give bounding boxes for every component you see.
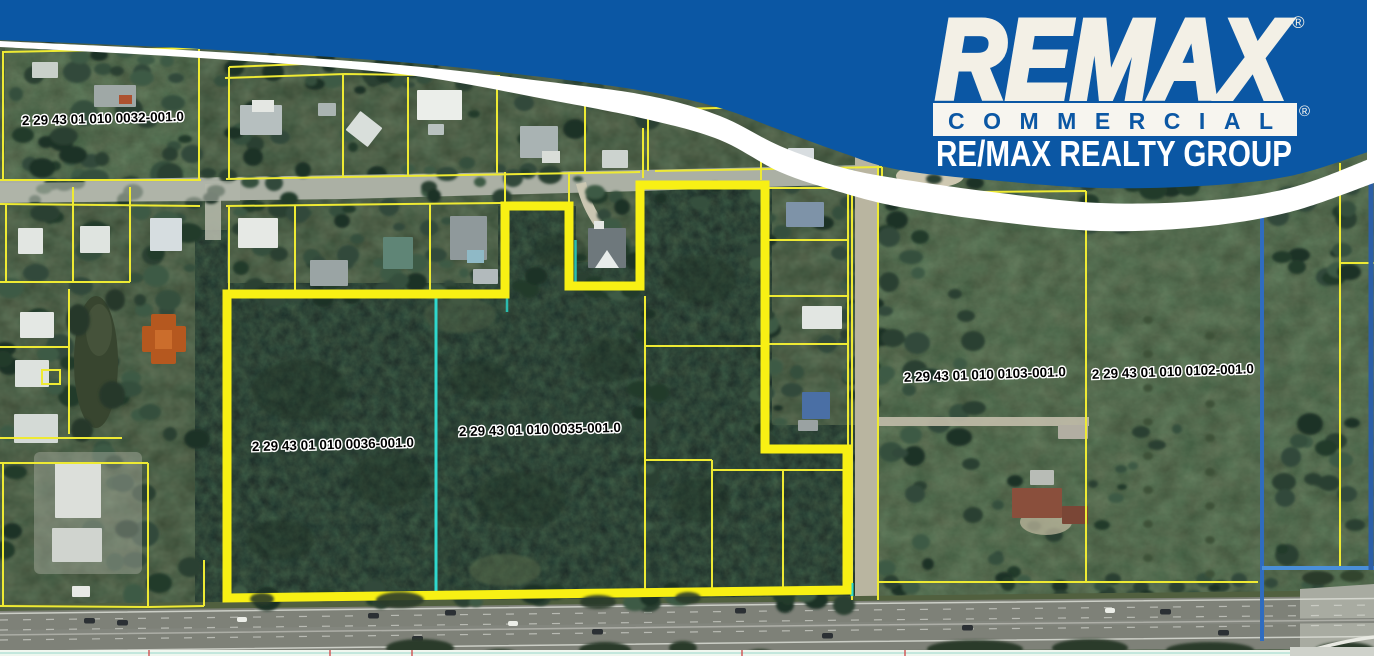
svg-text:RE/MAX REALTY GROUP: RE/MAX REALTY GROUP: [936, 133, 1292, 174]
svg-text:COMMERCIAL: COMMERCIAL: [948, 108, 1283, 134]
svg-text:®: ®: [1299, 103, 1310, 120]
svg-text:®: ®: [1292, 13, 1305, 32]
